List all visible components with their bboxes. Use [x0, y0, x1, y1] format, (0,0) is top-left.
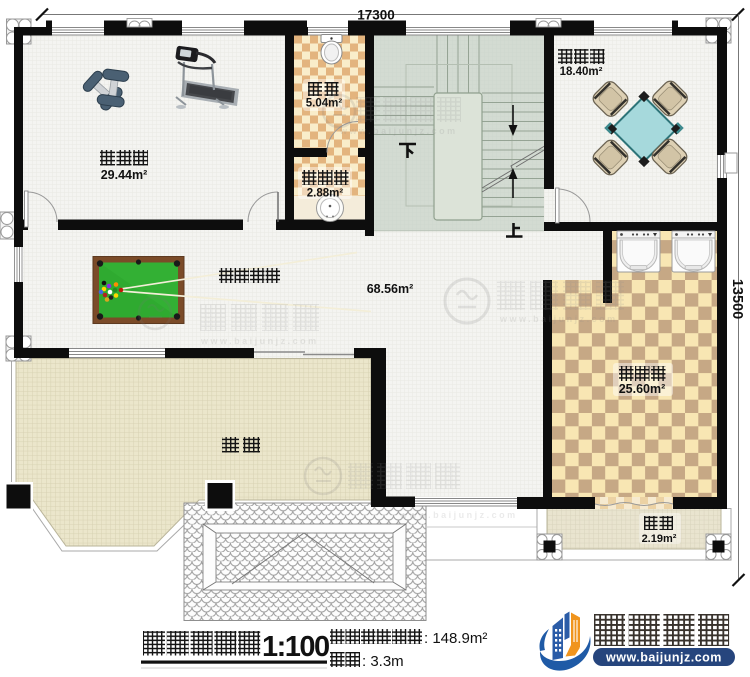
svg-text:2.19m²: 2.19m²	[642, 533, 677, 545]
svg-text:: 148.9m²: : 148.9m²	[424, 630, 487, 647]
svg-text:18.40m²: 18.40m²	[560, 66, 603, 78]
svg-text:www.baijunjz.com: www.baijunjz.com	[200, 336, 319, 346]
svg-text:68.56m²: 68.56m²	[367, 282, 414, 296]
svg-text:www.baijunjz.com: www.baijunjz.com	[605, 651, 722, 665]
svg-text:www.baijunjz.com: www.baijunjz.com	[339, 126, 458, 136]
svg-text:2.88m²: 2.88m²	[307, 188, 344, 200]
svg-text:13500: 13500	[729, 279, 745, 319]
svg-text:29.44m²: 29.44m²	[101, 168, 148, 182]
svg-text:: 3.3m: : 3.3m	[362, 653, 404, 670]
svg-text:25.60m²: 25.60m²	[619, 382, 666, 396]
svg-text:www.baijunjz.com: www.baijunjz.com	[399, 510, 518, 520]
svg-text:17300: 17300	[357, 8, 395, 23]
svg-text:1:100: 1:100	[262, 631, 329, 663]
svg-text:www.baijunjz.com: www.baijunjz.com	[499, 314, 618, 324]
